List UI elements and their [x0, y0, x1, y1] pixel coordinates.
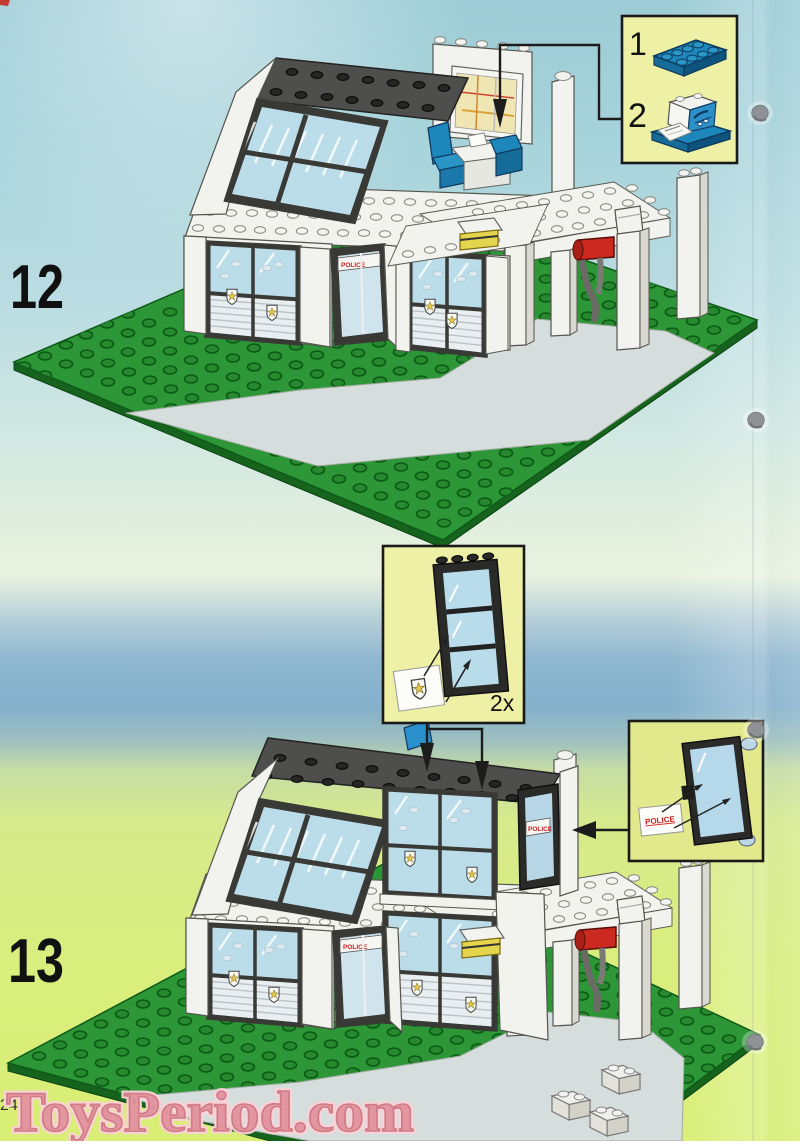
- svg-text:13: 13: [8, 927, 64, 996]
- svg-text:2: 2: [628, 97, 647, 135]
- svg-text:12: 12: [10, 253, 64, 322]
- svg-text:1: 1: [629, 26, 647, 62]
- svg-text:POLICE: POLICE: [528, 826, 553, 833]
- svg-text:ToysPeriod.com: ToysPeriod.com: [6, 1081, 414, 1141]
- svg-text:2x: 2x: [490, 690, 515, 716]
